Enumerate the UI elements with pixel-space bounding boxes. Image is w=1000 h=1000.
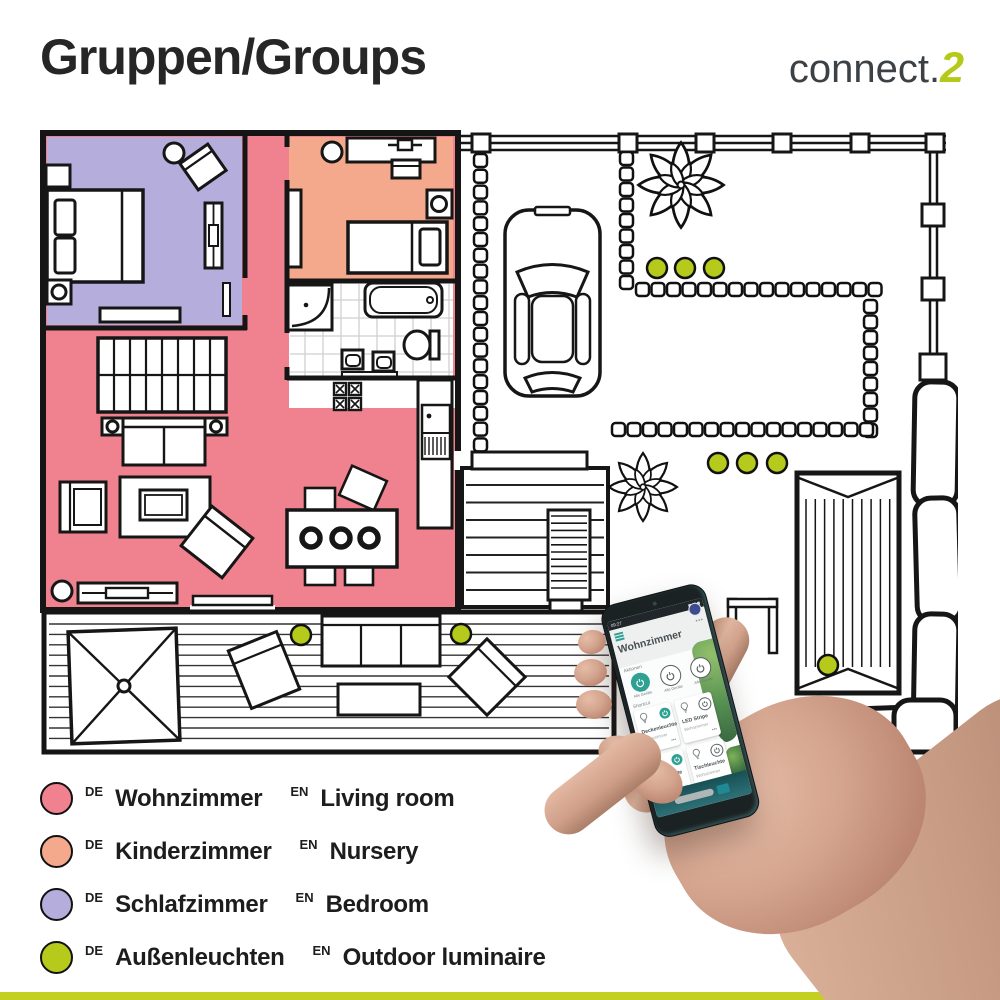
- legend-label-en: Living room: [320, 785, 454, 813]
- stool: [322, 142, 342, 162]
- single-bed: [348, 222, 447, 273]
- staircase: [98, 338, 226, 412]
- armchair: [60, 482, 106, 532]
- action-all-devices[interactable]: Alle Geräte: [657, 663, 685, 694]
- photo-detail: [716, 783, 730, 795]
- outdoor-light-dot: [767, 453, 787, 473]
- floor-lamp: [52, 581, 72, 601]
- toggle-off[interactable]: [697, 696, 713, 712]
- bathtub: [365, 283, 442, 317]
- legend-label-de: Kinderzimmer: [115, 838, 271, 866]
- page-title: Gruppen/Groups: [40, 28, 426, 86]
- action-all-devices[interactable]: Alle Geräte: [687, 655, 715, 686]
- power-icon: [634, 676, 646, 688]
- legend-color-dot: [40, 835, 73, 868]
- deck-table: [338, 684, 420, 715]
- legend-row-outdoor: DE Außenleuchten EN Outdoor luminaire: [40, 931, 546, 984]
- outdoor-sofa: [322, 616, 440, 666]
- bulb-icon: [689, 747, 704, 762]
- legend-label-en: Bedroom: [326, 891, 429, 919]
- lang-tag: EN: [296, 890, 314, 905]
- lang-tag: DE: [85, 837, 103, 852]
- desk-chair: [392, 160, 420, 178]
- lang-tag: EN: [290, 784, 308, 799]
- outdoor-light-dot: [451, 624, 471, 644]
- brand-logo-text: connect.: [789, 47, 940, 91]
- car: [505, 207, 600, 396]
- double-bed: [47, 190, 143, 282]
- toilet: [404, 331, 439, 359]
- legend-label-de: Außenleuchten: [115, 944, 284, 972]
- dresser: [205, 203, 222, 268]
- outdoor-light-dot: [708, 453, 728, 473]
- legend-label-de: Schlafzimmer: [115, 891, 267, 919]
- bulb-icon: [637, 711, 652, 726]
- kitchen-counter: [418, 380, 452, 528]
- lang-tag: DE: [85, 890, 103, 905]
- lang-tag: DE: [85, 943, 103, 958]
- deck-door: [193, 596, 272, 605]
- fingertip: [576, 690, 612, 719]
- device-card-led-stripe[interactable]: LED Stripe Wohnzimmer •••: [674, 691, 722, 743]
- outdoor-light-dot: [675, 258, 695, 278]
- brand-logo-accent: 2: [940, 44, 964, 92]
- outdoor-light-dot: [291, 625, 311, 645]
- outdoor-light-dot: [647, 258, 667, 278]
- action-all-devices[interactable]: Alle Geräte: [627, 670, 655, 701]
- power-icon: [694, 662, 706, 674]
- floor-plan: [40, 128, 958, 760]
- power-icon: [664, 669, 676, 681]
- tv-console: [78, 583, 177, 603]
- poster-canvas: Gruppen/Groups connect.2: [0, 0, 1000, 1000]
- legend-label-en: Nursery: [330, 838, 419, 866]
- outdoor-light-dot: [704, 258, 724, 278]
- card-menu[interactable]: •••: [711, 726, 718, 733]
- legend-color-dot: [40, 888, 73, 921]
- legend: DE Wohnzimmer EN Living room DE Kinderzi…: [40, 772, 546, 984]
- bedroom-closet: [100, 308, 180, 322]
- legend-color-dot: [40, 941, 73, 974]
- outdoor-light-dot: [818, 655, 838, 675]
- entrance-porch: [462, 452, 608, 613]
- toggle-on[interactable]: [658, 706, 671, 719]
- brand-logo: connect.2: [789, 44, 964, 93]
- bulb-icon: [677, 700, 692, 715]
- card-menu[interactable]: •••: [671, 737, 678, 744]
- legend-row-bedroom: DE Schlafzimmer EN Bedroom: [40, 878, 546, 931]
- nightstand: [46, 165, 70, 187]
- toggle-on[interactable]: [670, 753, 683, 766]
- round-table: [164, 143, 184, 163]
- outdoor-light-dot: [737, 453, 757, 473]
- deck: [44, 612, 614, 752]
- legend-row-nursery: DE Kinderzimmer EN Nursery: [40, 825, 546, 878]
- parasol: [68, 628, 180, 744]
- legend-label-de: Wohnzimmer: [115, 785, 262, 813]
- legend-color-dot: [40, 782, 73, 815]
- toggle-off[interactable]: [709, 742, 725, 758]
- lang-tag: EN: [313, 943, 331, 958]
- shower: [288, 285, 332, 330]
- legend-label-en: Outdoor luminaire: [343, 944, 546, 972]
- nursery-nightstand: [427, 190, 452, 218]
- bedroom-door: [223, 283, 230, 316]
- garden-gate: [797, 473, 899, 693]
- nightstand-with-lamp: [47, 280, 71, 304]
- lang-tag: EN: [300, 837, 318, 852]
- lang-tag: DE: [85, 784, 103, 799]
- legend-row-living-room: DE Wohnzimmer EN Living room: [40, 772, 546, 825]
- camera-dot: [652, 601, 657, 606]
